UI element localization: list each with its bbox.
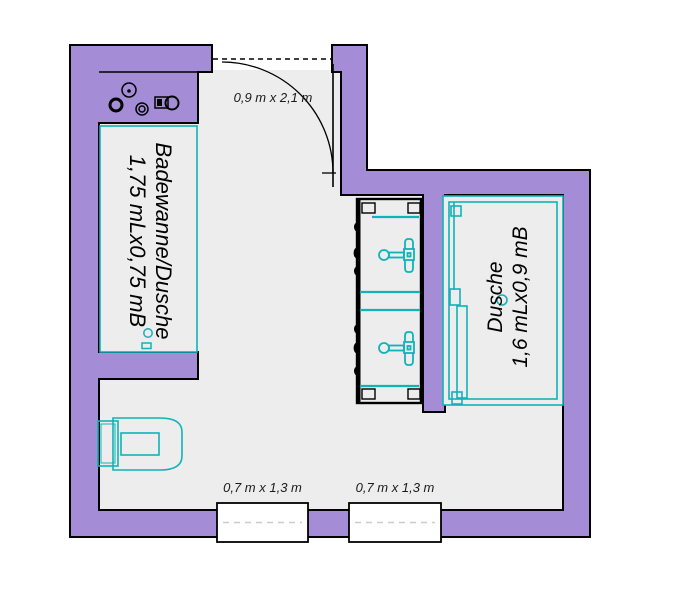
vanity-cabinet[interactable]: [354, 199, 421, 403]
window-2-size-label: 0,7 m x 1,3 m: [349, 480, 441, 495]
bathtub-size: 1,75 mLx0,75 mB: [124, 155, 150, 327]
shower-name: Dusche: [483, 261, 508, 332]
window-2[interactable]: [349, 503, 441, 542]
window-1[interactable]: [217, 503, 308, 542]
bathtub-name: Badewanne/Dusche: [150, 143, 176, 340]
bathtub-label: Badewanne/Dusche 1,75 mLx0,75 mB: [124, 143, 176, 340]
floorplan-drawing: [0, 0, 691, 607]
floorplan-canvas: 0,9 m x 2,1 m 0,7 m x 1,3 m 0,7 m x 1,3 …: [0, 0, 691, 607]
window-1-size-label: 0,7 m x 1,3 m: [217, 480, 308, 495]
shower-label: Dusche 1,6 mLx0,9 mB: [483, 226, 533, 367]
pump-fill: [157, 99, 162, 106]
pipe-connection-dot: [127, 89, 131, 93]
shower-size: 1,6 mLx0,9 mB: [508, 226, 533, 367]
door-size-label: 0,9 m x 2,1 m: [212, 90, 334, 105]
